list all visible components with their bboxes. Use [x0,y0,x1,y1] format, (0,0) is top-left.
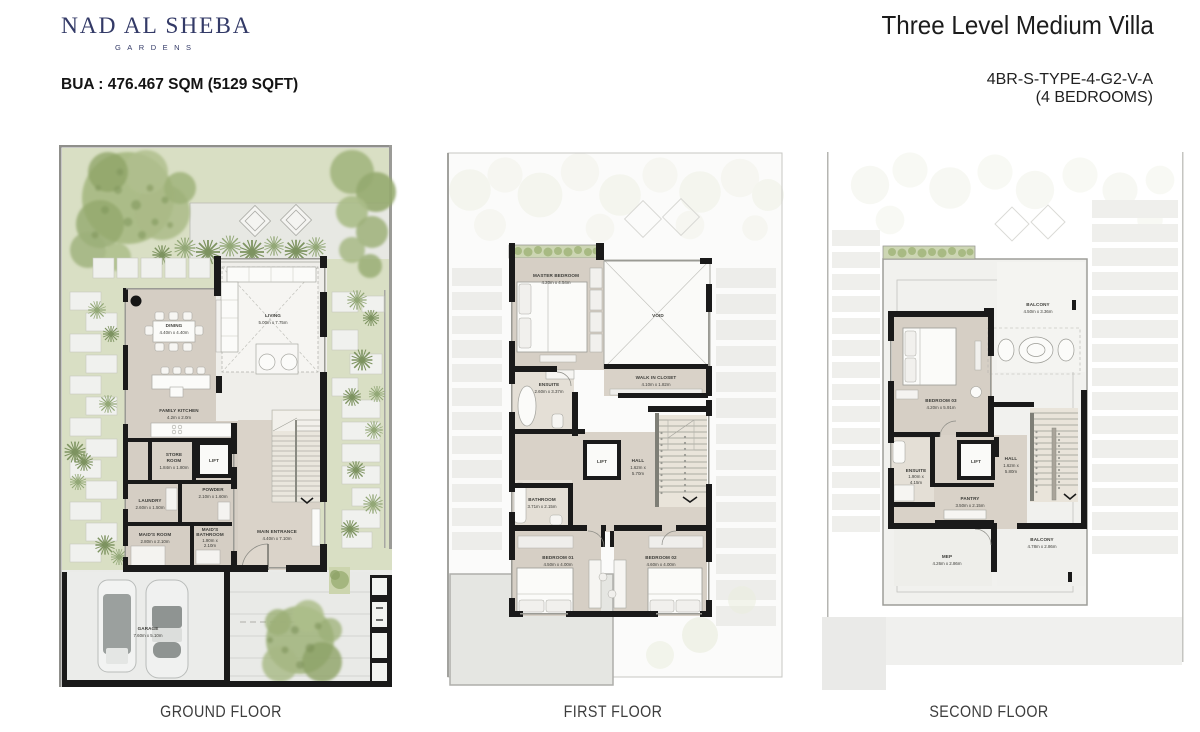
svg-text:4.10m x 1.82m: 4.10m x 1.82m [641,382,670,387]
svg-text:7.60m x 5.10m: 7.60m x 5.10m [133,633,162,638]
svg-text:BATHROOM: BATHROOM [196,532,224,537]
svg-text:4.26m x 2.86m: 4.26m x 2.86m [932,561,961,566]
svg-text:5.80m: 5.80m [1005,469,1018,474]
svg-text:1.90m x: 1.90m x [908,474,924,479]
svg-text:3.71m x 2.15m: 3.71m x 2.15m [527,504,556,509]
svg-text:5.00m x 7.75m: 5.00m x 7.75m [258,320,287,325]
svg-text:4.20m x 5.91m: 4.20m x 5.91m [926,405,955,410]
svg-text:LAUNDRY: LAUNDRY [139,498,162,503]
svg-text:POWDER: POWDER [202,487,224,492]
svg-text:BALCONY: BALCONY [1026,302,1049,307]
svg-text:LIFT: LIFT [971,459,981,464]
svg-text:5.70m: 5.70m [632,471,645,476]
svg-text:PANTRY: PANTRY [961,496,980,501]
svg-text:3.50m x 2.15m: 3.50m x 2.15m [955,503,984,508]
svg-text:LIVING: LIVING [265,313,281,318]
svg-text:MASTER BEDROOM: MASTER BEDROOM [533,273,579,278]
svg-text:2.10m: 2.10m [204,543,217,548]
svg-text:GARAGE: GARAGE [138,626,159,631]
svg-text:FAMILY KITCHEN: FAMILY KITCHEN [159,408,199,413]
svg-text:4.40m x 4.40m: 4.40m x 4.40m [159,330,188,335]
svg-text:BEDROOM 01: BEDROOM 01 [542,555,574,560]
svg-text:4.15m: 4.15m [910,480,923,485]
svg-text:BATHROOM: BATHROOM [528,497,556,502]
svg-text:4.50m x 4.00m: 4.50m x 4.00m [543,562,572,567]
svg-text:MAIN ENTRANCE: MAIN ENTRANCE [257,529,297,534]
svg-text:VOID: VOID [652,313,664,318]
svg-text:HALL: HALL [1005,456,1018,461]
svg-text:BEDROOM 02: BEDROOM 02 [645,555,677,560]
svg-text:ENSUITE: ENSUITE [906,468,927,473]
svg-text:MEP: MEP [942,554,952,559]
svg-text:4.20m x 4.54m: 4.20m x 4.54m [541,280,570,285]
svg-text:1.62m x: 1.62m x [1003,463,1019,468]
svg-text:BEDROOM 03: BEDROOM 03 [925,398,957,403]
svg-text:HALL: HALL [632,458,645,463]
svg-text:LIFT: LIFT [209,458,219,463]
svg-text:4.60m x 4.00m: 4.60m x 4.00m [646,562,675,567]
svg-text:2.60m x 3.37m: 2.60m x 3.37m [534,389,563,394]
svg-text:STORE: STORE [166,452,182,457]
svg-text:2.10m x 1.60m: 2.10m x 1.60m [198,494,227,499]
svg-text:4.40m x 7.10m: 4.40m x 7.10m [262,536,291,541]
svg-text:ROOM: ROOM [167,458,182,463]
svg-text:BALCONY: BALCONY [1030,537,1053,542]
svg-text:1.62m x: 1.62m x [630,465,646,470]
svg-text:2.60m x 1.50m: 2.60m x 1.50m [135,505,164,510]
svg-text:ENSUITE: ENSUITE [539,382,560,387]
svg-text:4.2m x 2.0m: 4.2m x 2.0m [167,415,191,420]
svg-text:DINING: DINING [166,323,183,328]
svg-text:WALK IN CLOSET: WALK IN CLOSET [636,375,677,380]
svg-text:4.78m x 2.86m: 4.78m x 2.86m [1027,544,1056,549]
svg-text:4.50m x 3.36m: 4.50m x 3.36m [1023,309,1052,314]
svg-text:MAID'S ROOM: MAID'S ROOM [139,532,172,537]
svg-text:1.84m x 1.80m: 1.84m x 1.80m [159,465,188,470]
svg-text:2.80m x 2.10m: 2.80m x 2.10m [140,539,169,544]
svg-text:LIFT: LIFT [597,459,607,464]
